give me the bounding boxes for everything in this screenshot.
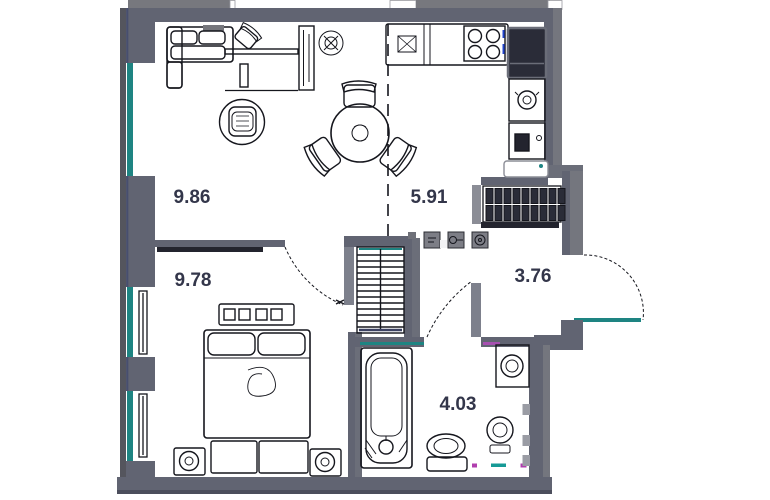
svg-text:3.76: 3.76 bbox=[515, 266, 552, 287]
svg-text:4.03: 4.03 bbox=[440, 394, 477, 415]
svg-text:5.91: 5.91 bbox=[411, 187, 448, 208]
svg-text:9.86: 9.86 bbox=[174, 187, 211, 208]
svg-text:9.78: 9.78 bbox=[175, 270, 212, 291]
